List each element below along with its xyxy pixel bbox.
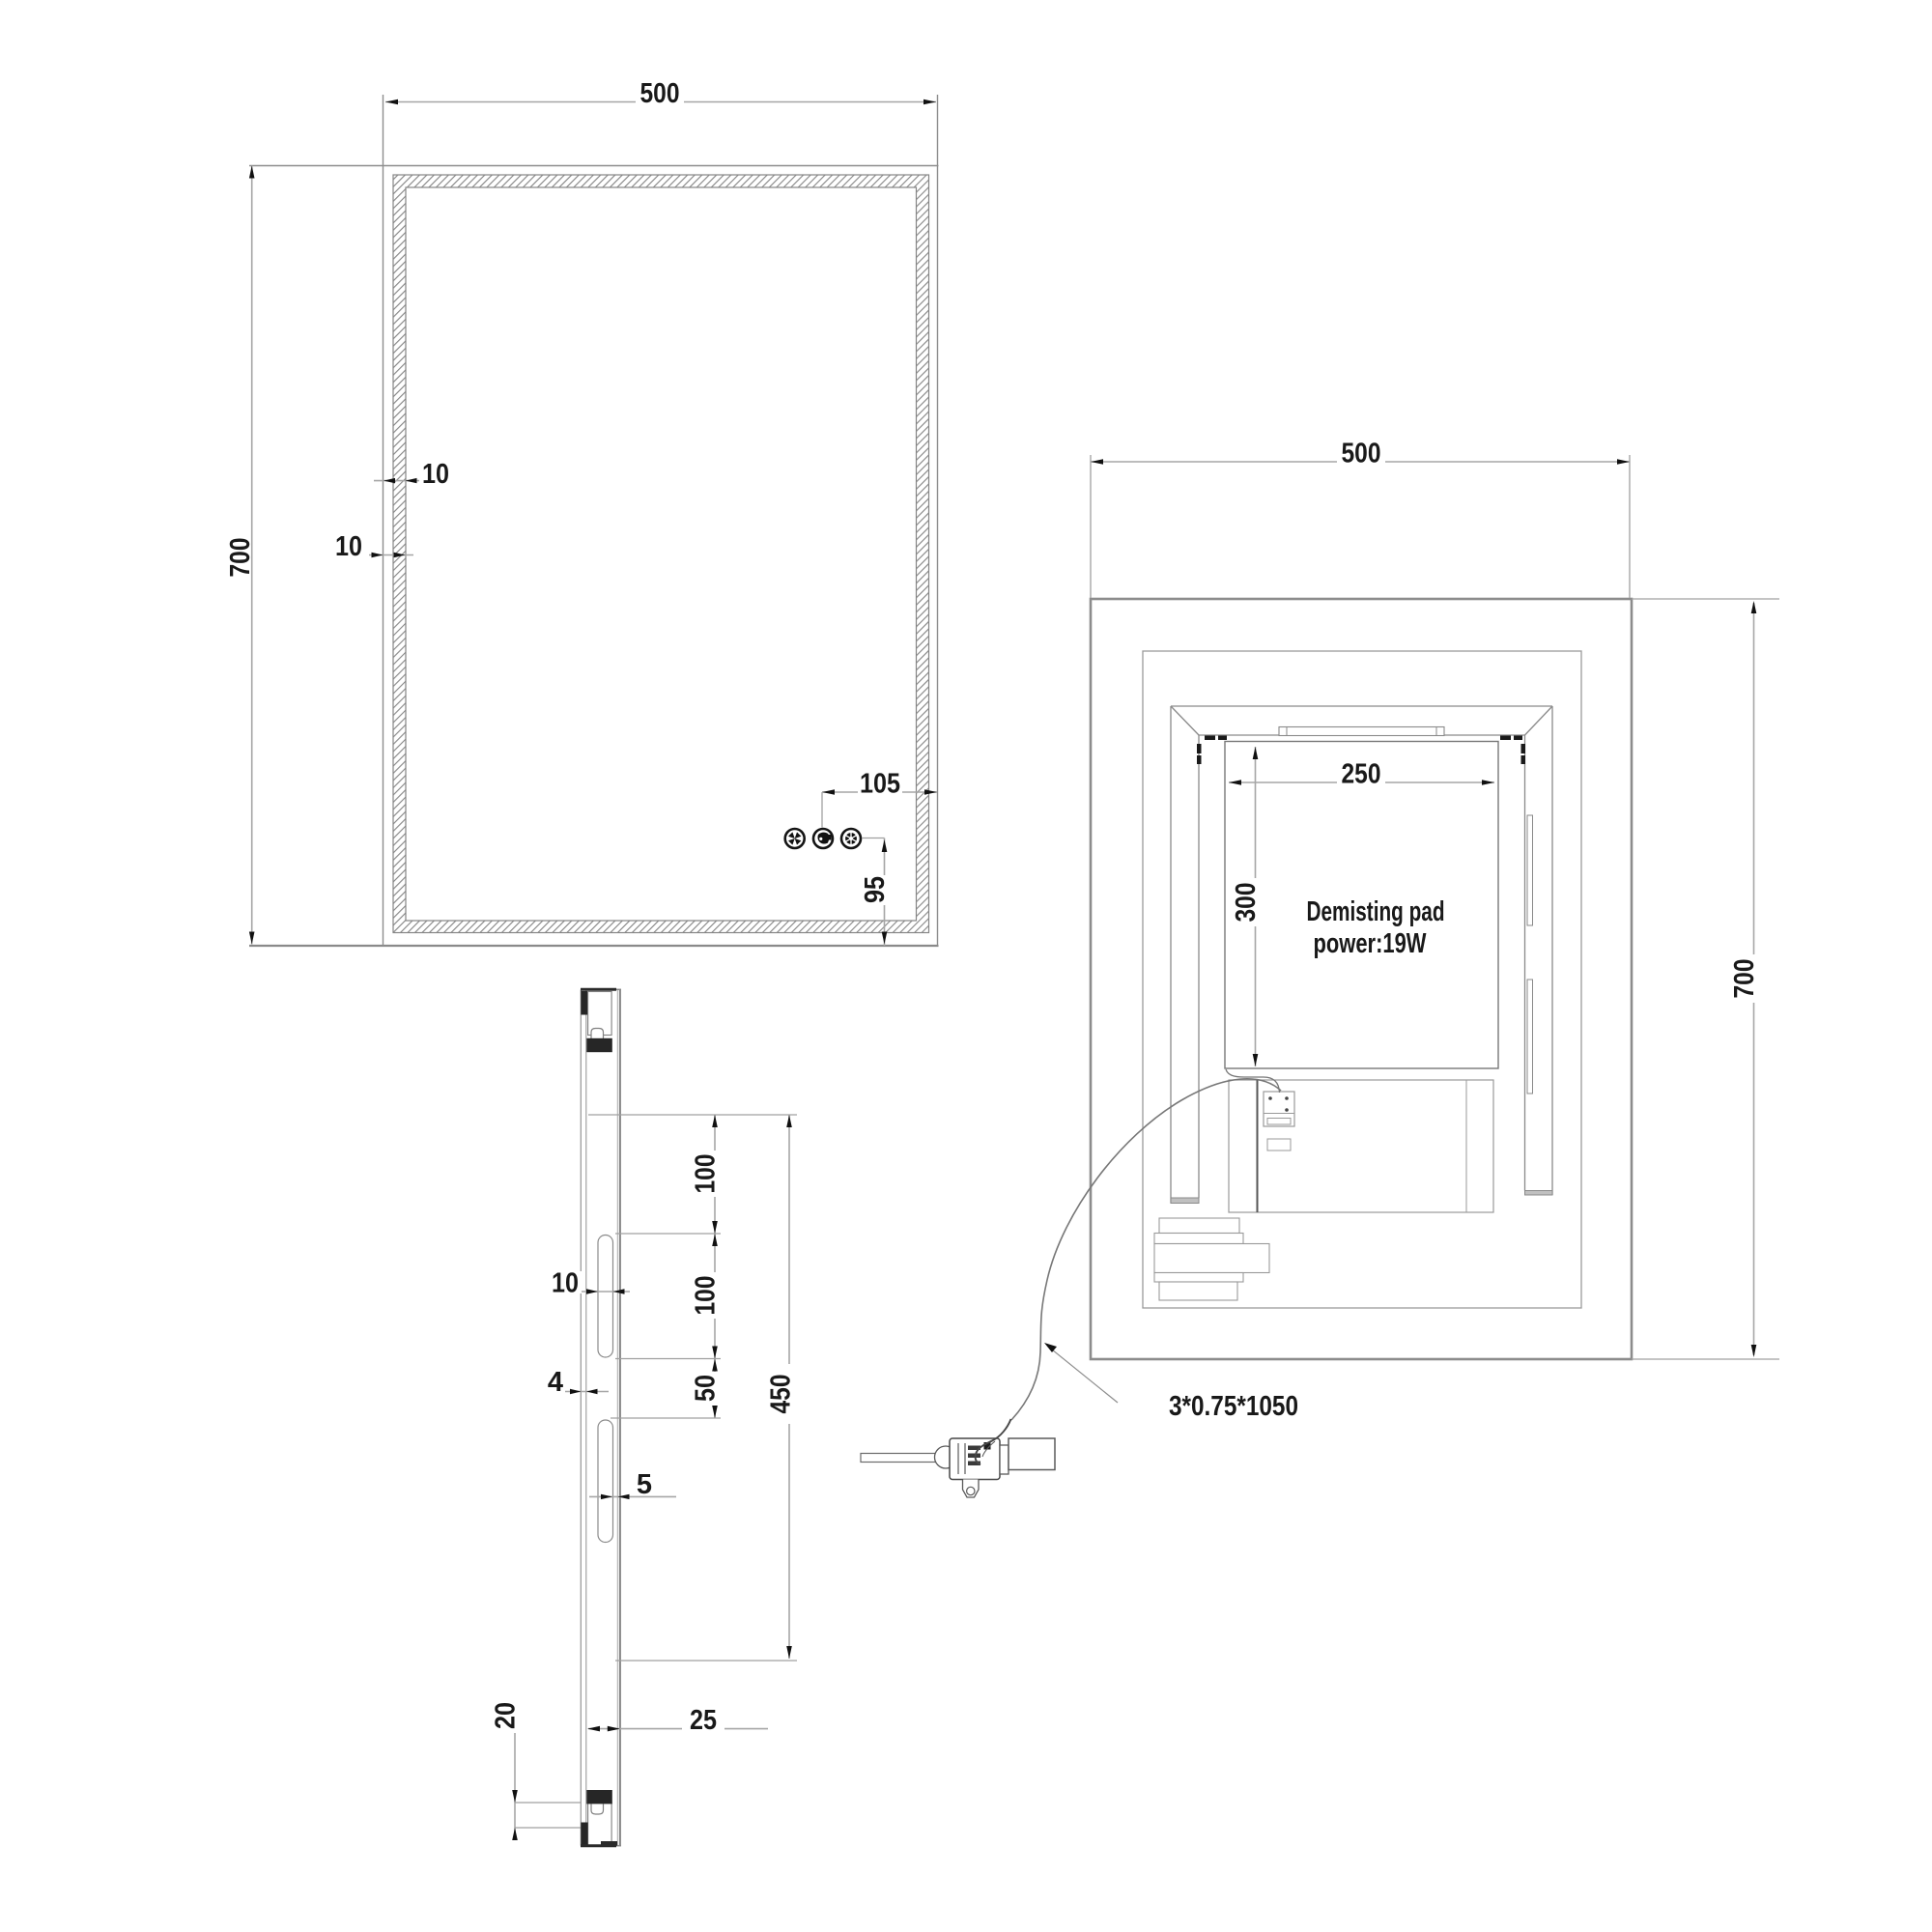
svg-text:95: 95: [860, 876, 891, 903]
svg-text:50: 50: [691, 1375, 722, 1402]
svg-text:10: 10: [552, 1268, 579, 1299]
svg-text:10: 10: [422, 459, 449, 490]
svg-text:700: 700: [1729, 959, 1760, 999]
svg-text:power:19W: power:19W: [1314, 928, 1427, 959]
svg-text:300: 300: [1231, 883, 1262, 923]
svg-text:5: 5: [637, 1469, 652, 1500]
svg-text:450: 450: [766, 1375, 797, 1414]
svg-text:100: 100: [691, 1154, 722, 1194]
svg-text:500: 500: [1342, 439, 1381, 469]
svg-text:20: 20: [491, 1702, 522, 1729]
svg-text:105: 105: [860, 769, 900, 800]
svg-text:10: 10: [335, 531, 362, 562]
svg-text:4: 4: [548, 1367, 563, 1398]
svg-text:500: 500: [640, 78, 680, 109]
svg-text:Demisting pad: Demisting pad: [1307, 896, 1445, 927]
svg-text:700: 700: [225, 538, 256, 578]
svg-text:3*0.75*1050: 3*0.75*1050: [1169, 1391, 1298, 1422]
svg-text:25: 25: [690, 1705, 717, 1736]
svg-text:250: 250: [1342, 759, 1381, 790]
svg-text:100: 100: [691, 1276, 722, 1316]
